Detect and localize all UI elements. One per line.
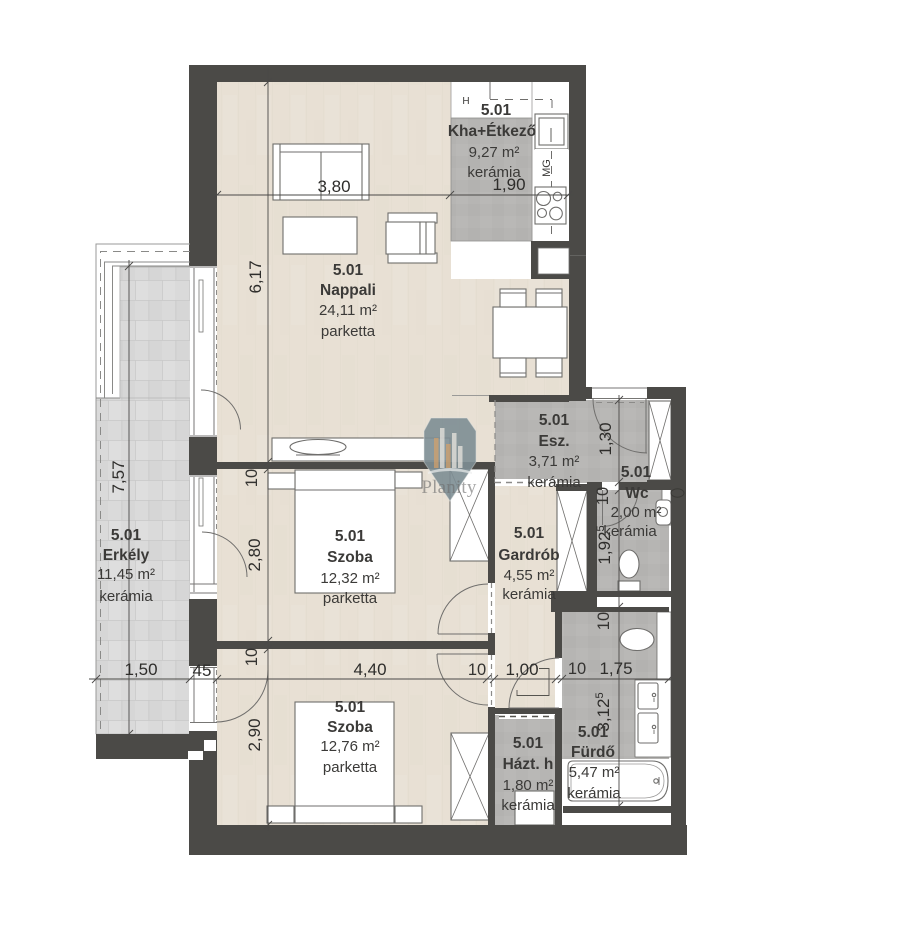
svg-text:11,45 m²: 11,45 m² — [97, 566, 155, 583]
svg-text:kerámia: kerámia — [603, 523, 657, 540]
svg-text:3,71 m²: 3,71 m² — [529, 453, 580, 470]
svg-text:4,40: 4,40 — [353, 660, 386, 679]
svg-text:Erkély: Erkély — [103, 547, 150, 564]
svg-text:5.01: 5.01 — [513, 735, 544, 752]
svg-text:H: H — [462, 96, 469, 107]
svg-text:5,47 m²: 5,47 m² — [569, 764, 620, 781]
svg-text:9,27 m²: 9,27 m² — [469, 144, 520, 161]
svg-text:7,57: 7,57 — [109, 460, 128, 493]
svg-text:24,11 m²: 24,11 m² — [319, 302, 377, 319]
svg-text:Gardrób: Gardrób — [498, 547, 559, 564]
svg-text:12,76 m²: 12,76 m² — [320, 738, 379, 755]
svg-text:2,00 m²: 2,00 m² — [611, 504, 662, 521]
svg-text:1,50: 1,50 — [124, 660, 157, 679]
svg-text:10: 10 — [594, 487, 612, 505]
svg-text:parketta: parketta — [321, 323, 376, 340]
svg-text:5.01: 5.01 — [621, 464, 652, 481]
svg-text:10: 10 — [568, 660, 586, 678]
svg-text:parketta: parketta — [323, 590, 378, 607]
svg-text:10: 10 — [243, 648, 261, 666]
svg-text:kerámia: kerámia — [567, 785, 621, 802]
svg-text:kerámia: kerámia — [99, 588, 153, 605]
svg-text:5.01: 5.01 — [578, 724, 609, 741]
svg-text:kerámia: kerámia — [502, 586, 556, 603]
svg-text:10: 10 — [468, 661, 486, 679]
svg-text:3,80: 3,80 — [317, 177, 350, 196]
svg-text:12,32 m²: 12,32 m² — [320, 570, 379, 587]
svg-text:kerámia: kerámia — [501, 797, 555, 814]
svg-text:1,75: 1,75 — [599, 659, 632, 678]
svg-text:MG: MG — [541, 159, 553, 177]
svg-text:5.01: 5.01 — [335, 528, 366, 545]
svg-text:kerámia: kerámia — [527, 474, 581, 491]
svg-text:10: 10 — [595, 612, 613, 630]
svg-text:1,80 m²: 1,80 m² — [503, 777, 554, 794]
svg-text:5.01: 5.01 — [539, 412, 570, 429]
svg-text:5.01: 5.01 — [481, 102, 512, 119]
svg-text:5.01: 5.01 — [514, 525, 545, 542]
svg-text:5.01: 5.01 — [111, 527, 142, 544]
svg-text:Szoba: Szoba — [327, 549, 373, 566]
svg-text:Házt. h: Házt. h — [503, 756, 554, 773]
svg-text:Nappali: Nappali — [320, 282, 376, 299]
svg-text:1,00: 1,00 — [505, 660, 538, 679]
svg-text:45: 45 — [193, 661, 212, 680]
svg-text:6,17: 6,17 — [246, 260, 265, 293]
svg-text:2,80: 2,80 — [245, 538, 264, 571]
svg-text:5.01: 5.01 — [335, 699, 366, 716]
svg-text:1,30: 1,30 — [596, 422, 615, 455]
svg-text:Szoba: Szoba — [327, 719, 373, 736]
svg-text:4,55 m²: 4,55 m² — [504, 567, 555, 584]
svg-text:Fürdő: Fürdő — [571, 744, 615, 761]
svg-text:parketta: parketta — [323, 759, 378, 776]
svg-text:5.01: 5.01 — [333, 262, 364, 279]
svg-text:Wc: Wc — [625, 485, 649, 502]
svg-text:Esz.: Esz. — [538, 433, 569, 450]
svg-text:kerámia: kerámia — [467, 164, 521, 181]
svg-text:10: 10 — [243, 469, 261, 487]
svg-text:2,90: 2,90 — [245, 718, 264, 751]
svg-text:Kha+Étkező: Kha+Étkező — [448, 123, 536, 140]
svg-text:Planity: Planity — [421, 477, 477, 498]
